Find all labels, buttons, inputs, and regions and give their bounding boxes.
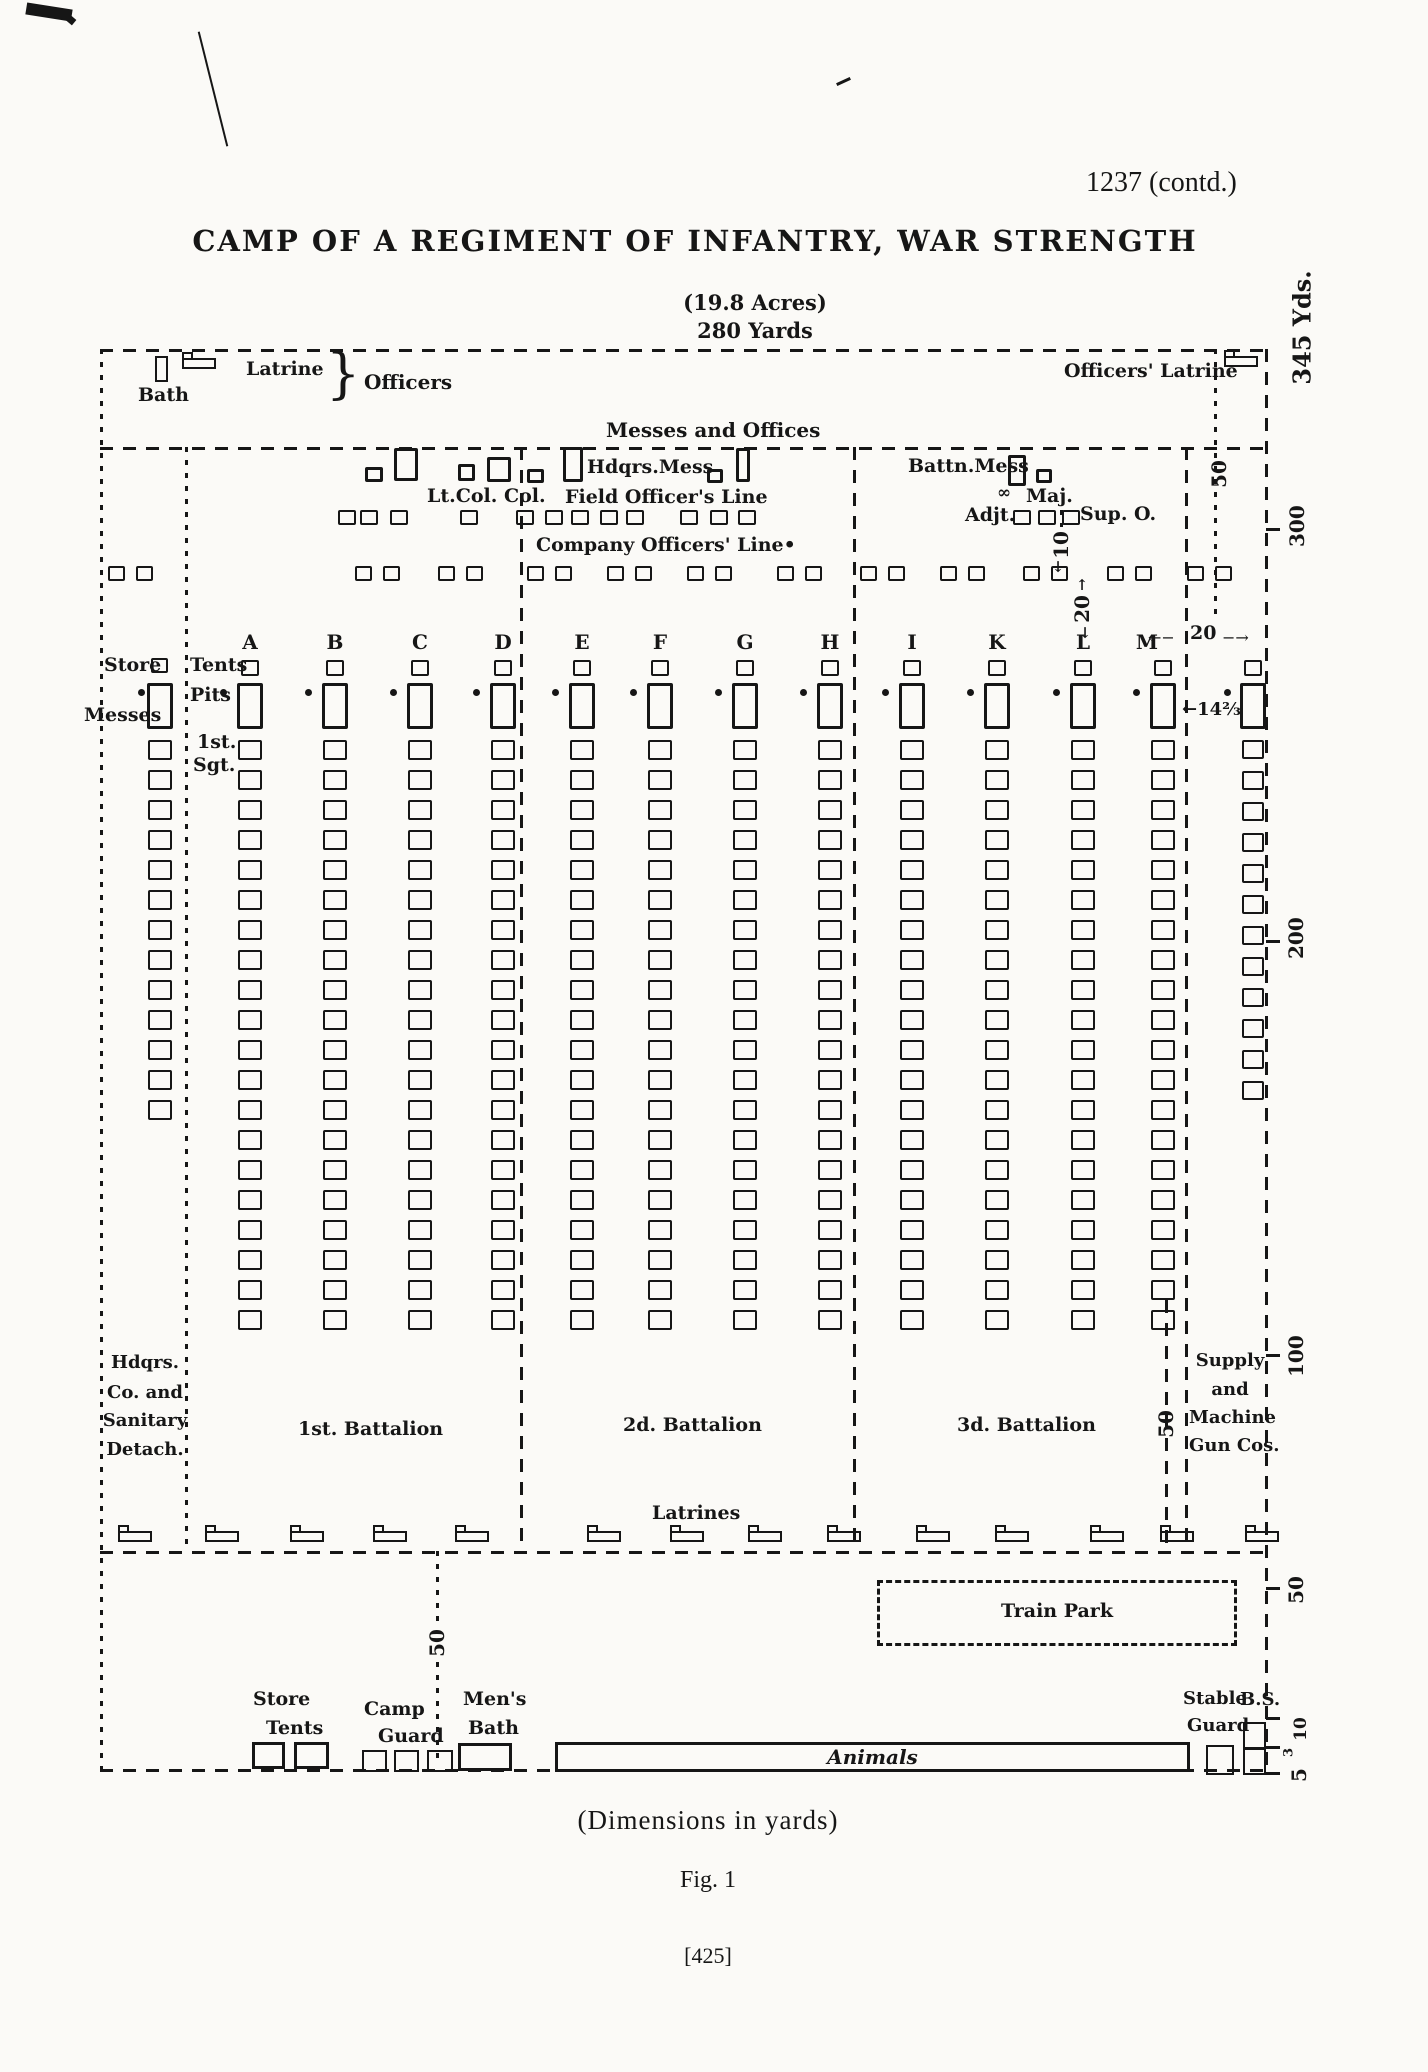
mess-office-structure	[1008, 455, 1026, 486]
street-tent	[491, 1190, 515, 1210]
street-tent	[408, 740, 432, 760]
street-tent	[900, 1100, 924, 1120]
street-tent	[1151, 1160, 1175, 1180]
street-tent	[1151, 800, 1175, 820]
kitchen-pit-dot	[473, 689, 480, 696]
supply-column-tent	[1242, 1050, 1264, 1069]
supply-column-tent	[1242, 833, 1264, 852]
street-tent	[985, 920, 1009, 940]
company-officer-tent	[899, 683, 925, 729]
street-tent	[900, 1130, 924, 1150]
street-tent	[491, 920, 515, 940]
street-tent	[648, 800, 672, 820]
street-tent	[1071, 830, 1095, 850]
street-tent	[1071, 800, 1095, 820]
street-tent	[900, 800, 924, 820]
street-tent	[985, 1040, 1009, 1060]
street-tent	[733, 1010, 757, 1030]
street-tent	[323, 1280, 347, 1300]
street-tent	[323, 1040, 347, 1060]
street-tent	[648, 1250, 672, 1270]
street-tent	[570, 1070, 594, 1090]
company-officer-line-tent	[1135, 566, 1152, 581]
company-officer-tent	[569, 683, 595, 729]
street-tent	[238, 1280, 262, 1300]
street-tent	[733, 1160, 757, 1180]
street-tent	[648, 1130, 672, 1150]
kitchen-pit-dot	[715, 689, 722, 696]
street-tent	[818, 1250, 842, 1270]
street-tent	[323, 1190, 347, 1210]
street-tent	[985, 740, 1009, 760]
street-tent	[648, 980, 672, 1000]
street-tent	[733, 1280, 757, 1300]
street-tent	[408, 1280, 432, 1300]
company-officer-line-tent	[108, 566, 125, 581]
street-tent	[491, 950, 515, 970]
field-officer-line-tent	[1013, 510, 1031, 525]
street-tent	[238, 1100, 262, 1120]
scanned-page: 1237 (contd.) CAMP OF A REGIMENT OF INFA…	[0, 0, 1428, 2072]
street-tent	[1071, 770, 1095, 790]
street-tent	[985, 1220, 1009, 1240]
street-tent	[1151, 1310, 1175, 1330]
company-officer-line-tent	[355, 566, 372, 581]
street-tent	[570, 1100, 594, 1120]
street-tent	[900, 980, 924, 1000]
street-tent	[408, 1310, 432, 1330]
street-tent	[985, 890, 1009, 910]
field-officer-line-tent	[571, 510, 589, 525]
street-tent	[491, 1130, 515, 1150]
latrine-glyph	[827, 1531, 861, 1542]
street-tent	[570, 860, 594, 880]
street-tent	[985, 1010, 1009, 1030]
street-tent	[985, 1280, 1009, 1300]
street-tent	[733, 1190, 757, 1210]
company-officer-line-tent	[968, 566, 985, 581]
street-tent	[238, 800, 262, 820]
street-tent	[570, 770, 594, 790]
store-column-tent	[148, 830, 172, 850]
street-tent	[238, 920, 262, 940]
dimensions-note: (Dimensions in yards)	[458, 1806, 958, 1834]
street-tent	[648, 1220, 672, 1240]
street-tent	[238, 1190, 262, 1210]
company-officer-tent	[1150, 683, 1176, 729]
first-sgt-tent	[1154, 660, 1172, 676]
latrine-glyph	[1245, 1531, 1279, 1542]
camp-diagram: ABCDEFGHIKLM	[0, 0, 1428, 2072]
street-tent	[1071, 1100, 1095, 1120]
street-tent	[900, 770, 924, 790]
street-tent	[818, 1040, 842, 1060]
street-tent	[900, 1070, 924, 1090]
company-officer-line-tent	[860, 566, 877, 581]
street-tent	[648, 1070, 672, 1090]
store-column-tent	[148, 950, 172, 970]
street-tent	[1151, 1100, 1175, 1120]
street-tent	[238, 980, 262, 1000]
street-tent	[733, 860, 757, 880]
street-tent	[1071, 1130, 1095, 1150]
latrine-glyph	[748, 1531, 782, 1542]
street-tent	[323, 800, 347, 820]
street-tent	[648, 770, 672, 790]
street-tent	[238, 890, 262, 910]
company-officer-line-tent	[1023, 566, 1040, 581]
street-tent	[408, 1160, 432, 1180]
store-column-tent	[148, 980, 172, 1000]
street-tent	[818, 920, 842, 940]
street-tent	[733, 1070, 757, 1090]
street-tent	[900, 860, 924, 880]
store-column-tent	[148, 920, 172, 940]
store-column-tent	[148, 890, 172, 910]
company-officer-line-tent	[635, 566, 652, 581]
street-tent	[408, 1040, 432, 1060]
street-tent	[408, 1130, 432, 1150]
street-tent	[1151, 860, 1175, 880]
street-tent	[818, 1310, 842, 1330]
mess-office-structure	[365, 467, 383, 482]
street-tent	[733, 830, 757, 850]
street-tent	[491, 980, 515, 1000]
street-tent	[491, 800, 515, 820]
street-tent	[818, 1160, 842, 1180]
company-letter: E	[567, 630, 597, 654]
street-tent	[1071, 920, 1095, 940]
street-tent	[900, 1160, 924, 1180]
street-tent	[648, 740, 672, 760]
street-tent	[323, 920, 347, 940]
street-tent	[1071, 1310, 1095, 1330]
street-tent	[570, 1190, 594, 1210]
mess-office-structure	[1036, 469, 1052, 483]
street-tent	[570, 980, 594, 1000]
company-officer-line-tent	[940, 566, 957, 581]
street-tent	[1151, 950, 1175, 970]
kitchen-pit-dot	[138, 689, 145, 696]
street-tent	[408, 1220, 432, 1240]
company-letter: L	[1068, 630, 1098, 654]
latrine-glyph	[373, 1531, 407, 1542]
street-tent	[900, 1280, 924, 1300]
store-column-tent	[148, 1040, 172, 1060]
kitchen-pit-dot	[1133, 689, 1140, 696]
store-column-tent	[148, 800, 172, 820]
company-officer-tent	[322, 683, 348, 729]
mess-office-structure	[394, 448, 418, 481]
kitchen-pit-dot	[1053, 689, 1060, 696]
street-tent	[323, 1070, 347, 1090]
latrine-glyph	[670, 1531, 704, 1542]
street-tent	[1071, 860, 1095, 880]
street-tent	[985, 1250, 1009, 1270]
field-officer-line-tent	[710, 510, 728, 525]
field-officer-line-tent	[600, 510, 618, 525]
street-tent	[733, 1220, 757, 1240]
company-officer-tent	[407, 683, 433, 729]
street-tent	[1071, 980, 1095, 1000]
street-tent	[900, 890, 924, 910]
company-officer-line-tent	[438, 566, 455, 581]
supply-column-tent	[1242, 1019, 1264, 1038]
mess-office-structure	[707, 469, 723, 483]
mess-office-structure	[487, 457, 511, 482]
store-column-tent	[148, 860, 172, 880]
street-tent	[570, 1040, 594, 1060]
supply-column-tent	[1242, 957, 1264, 976]
street-tent	[1151, 920, 1175, 940]
street-tent	[570, 800, 594, 820]
street-tent	[570, 950, 594, 970]
street-tent	[1071, 1160, 1095, 1180]
street-tent	[1151, 1190, 1175, 1210]
street-tent	[1071, 1070, 1095, 1090]
company-letter: A	[235, 630, 265, 654]
kitchen-pit-dot	[630, 689, 637, 696]
street-tent	[323, 1130, 347, 1150]
street-tent	[1071, 740, 1095, 760]
street-tent	[900, 1040, 924, 1060]
street-tent	[1151, 770, 1175, 790]
street-tent	[408, 1250, 432, 1270]
street-tent	[818, 740, 842, 760]
company-letter: C	[405, 630, 435, 654]
street-tent	[1151, 1010, 1175, 1030]
first-sgt-tent	[241, 660, 259, 676]
field-officer-line-tent	[738, 510, 756, 525]
street-tent	[238, 740, 262, 760]
street-tent	[1151, 1130, 1175, 1150]
street-tent	[1071, 950, 1095, 970]
company-letter: B	[320, 630, 350, 654]
street-tent	[408, 1190, 432, 1210]
company-officer-line-tent	[1107, 566, 1124, 581]
street-tent	[408, 860, 432, 880]
street-tent	[323, 1100, 347, 1120]
supply-column-tent	[1242, 926, 1264, 945]
street-tent	[900, 830, 924, 850]
street-tent	[238, 1160, 262, 1180]
street-tent	[648, 890, 672, 910]
company-officer-tent	[647, 683, 673, 729]
street-tent	[238, 860, 262, 880]
street-tent	[733, 950, 757, 970]
mess-office-structure	[527, 469, 544, 483]
company-officer-line-tent	[888, 566, 905, 581]
company-letter: H	[815, 630, 845, 654]
street-tent	[408, 830, 432, 850]
street-tent	[733, 770, 757, 790]
street-tent	[238, 1250, 262, 1270]
street-tent	[408, 1010, 432, 1030]
street-tent	[818, 1280, 842, 1300]
street-tent	[491, 1220, 515, 1240]
field-officer-line-tent	[626, 510, 644, 525]
street-tent	[408, 890, 432, 910]
street-tent	[238, 1070, 262, 1090]
street-tent	[491, 1010, 515, 1030]
latrine-glyph	[118, 1531, 152, 1542]
store-tent-square	[151, 658, 168, 673]
street-tent	[238, 1010, 262, 1030]
first-sgt-tent	[821, 660, 839, 676]
kitchen-pit-dot	[305, 689, 312, 696]
street-tent	[985, 1130, 1009, 1150]
street-tent	[985, 1190, 1009, 1210]
street-tent	[648, 1010, 672, 1030]
street-tent	[900, 1220, 924, 1240]
company-officer-line-tent	[1187, 566, 1204, 581]
street-tent	[648, 950, 672, 970]
street-tent	[238, 950, 262, 970]
store-column-tent	[148, 1070, 172, 1090]
street-tent	[733, 1040, 757, 1060]
street-tent	[491, 1310, 515, 1330]
field-officer-line-tent	[460, 510, 478, 525]
store-column-tent	[148, 1100, 172, 1120]
street-tent	[408, 950, 432, 970]
company-officer-line-tent	[466, 566, 483, 581]
street-tent	[323, 1310, 347, 1330]
kitchen-pit-dot	[552, 689, 559, 696]
company-letter: G	[730, 630, 760, 654]
street-tent	[985, 1070, 1009, 1090]
street-tent	[570, 1310, 594, 1330]
first-sgt-tent	[1074, 660, 1092, 676]
street-tent	[900, 740, 924, 760]
street-tent	[900, 950, 924, 970]
street-tent	[900, 920, 924, 940]
latrine-glyph	[587, 1531, 621, 1542]
company-officer-line-tent	[1051, 566, 1068, 581]
street-tent	[733, 1250, 757, 1270]
first-sgt-tent	[494, 660, 512, 676]
street-tent	[648, 1100, 672, 1120]
street-tent	[985, 950, 1009, 970]
street-tent	[570, 1220, 594, 1240]
street-tent	[570, 920, 594, 940]
street-tent	[733, 740, 757, 760]
street-tent	[1071, 1280, 1095, 1300]
street-tent	[1151, 1070, 1175, 1090]
street-tent	[818, 980, 842, 1000]
company-officer-line-tent	[383, 566, 400, 581]
street-tent	[491, 860, 515, 880]
street-tent	[491, 1280, 515, 1300]
mess-office-structure	[736, 448, 750, 482]
street-tent	[985, 830, 1009, 850]
street-tent	[985, 1100, 1009, 1120]
first-sgt-tent	[988, 660, 1006, 676]
street-tent	[818, 1130, 842, 1150]
kitchen-pit-dot	[967, 689, 974, 696]
company-letter: D	[488, 630, 518, 654]
street-tent	[1151, 980, 1175, 1000]
street-tent	[323, 770, 347, 790]
latrine-glyph	[205, 1531, 239, 1542]
company-officer-tent	[1070, 683, 1096, 729]
street-tent	[1071, 1250, 1095, 1270]
street-tent	[648, 1190, 672, 1210]
street-tent	[818, 860, 842, 880]
latrine-glyph	[1090, 1531, 1124, 1542]
street-tent	[900, 1310, 924, 1330]
kitchen-pit-dot	[800, 689, 807, 696]
company-officer-line-tent	[607, 566, 624, 581]
field-officer-line-tent	[516, 510, 534, 525]
street-tent	[408, 980, 432, 1000]
street-tent	[323, 950, 347, 970]
street-tent	[323, 1160, 347, 1180]
street-tent	[491, 740, 515, 760]
supply-column-tent	[1242, 802, 1264, 821]
street-tent	[323, 1220, 347, 1240]
street-tent	[818, 830, 842, 850]
street-tent	[491, 1160, 515, 1180]
company-officer-tent	[732, 683, 758, 729]
street-tent	[985, 770, 1009, 790]
street-tent	[570, 1280, 594, 1300]
street-tent	[733, 890, 757, 910]
first-sgt-tent	[326, 660, 344, 676]
store-column-tent	[148, 740, 172, 760]
street-tent	[985, 1160, 1009, 1180]
street-tent	[570, 1160, 594, 1180]
kitchen-pit-dot	[1224, 689, 1231, 696]
street-tent	[648, 830, 672, 850]
field-officer-line-tent	[360, 510, 378, 525]
street-tent	[1071, 890, 1095, 910]
street-tent	[985, 1310, 1009, 1330]
street-tent	[570, 1250, 594, 1270]
supply-officer-tent	[1240, 683, 1266, 729]
latrine-glyph	[290, 1531, 324, 1542]
company-letter: K	[982, 630, 1012, 654]
street-tent	[491, 890, 515, 910]
street-tent	[818, 1070, 842, 1090]
company-officer-line-tent	[777, 566, 794, 581]
street-tent	[733, 980, 757, 1000]
street-tent	[491, 1100, 515, 1120]
street-tent	[570, 1010, 594, 1030]
first-sgt-tent	[573, 660, 591, 676]
street-tent	[238, 1310, 262, 1330]
company-officer-line-tent	[136, 566, 153, 581]
street-tent	[985, 860, 1009, 880]
street-tent	[570, 830, 594, 850]
kitchen-pit-dot	[882, 689, 889, 696]
street-tent	[238, 830, 262, 850]
latrine-glyph	[995, 1531, 1029, 1542]
company-officer-tent	[237, 683, 263, 729]
company-officer-tent	[984, 683, 1010, 729]
mess-office-structure	[563, 447, 583, 482]
street-tent	[323, 1010, 347, 1030]
street-tent	[733, 1130, 757, 1150]
street-tent	[323, 740, 347, 760]
figure-caption: Fig. 1	[558, 1868, 858, 1893]
street-tent	[408, 920, 432, 940]
street-tent	[1071, 1220, 1095, 1240]
field-officer-line-tent	[545, 510, 563, 525]
kitchen-pit-dot	[220, 689, 227, 696]
company-officer-tent	[490, 683, 516, 729]
street-tent	[1151, 740, 1175, 760]
kitchen-pit-dot	[390, 689, 397, 696]
